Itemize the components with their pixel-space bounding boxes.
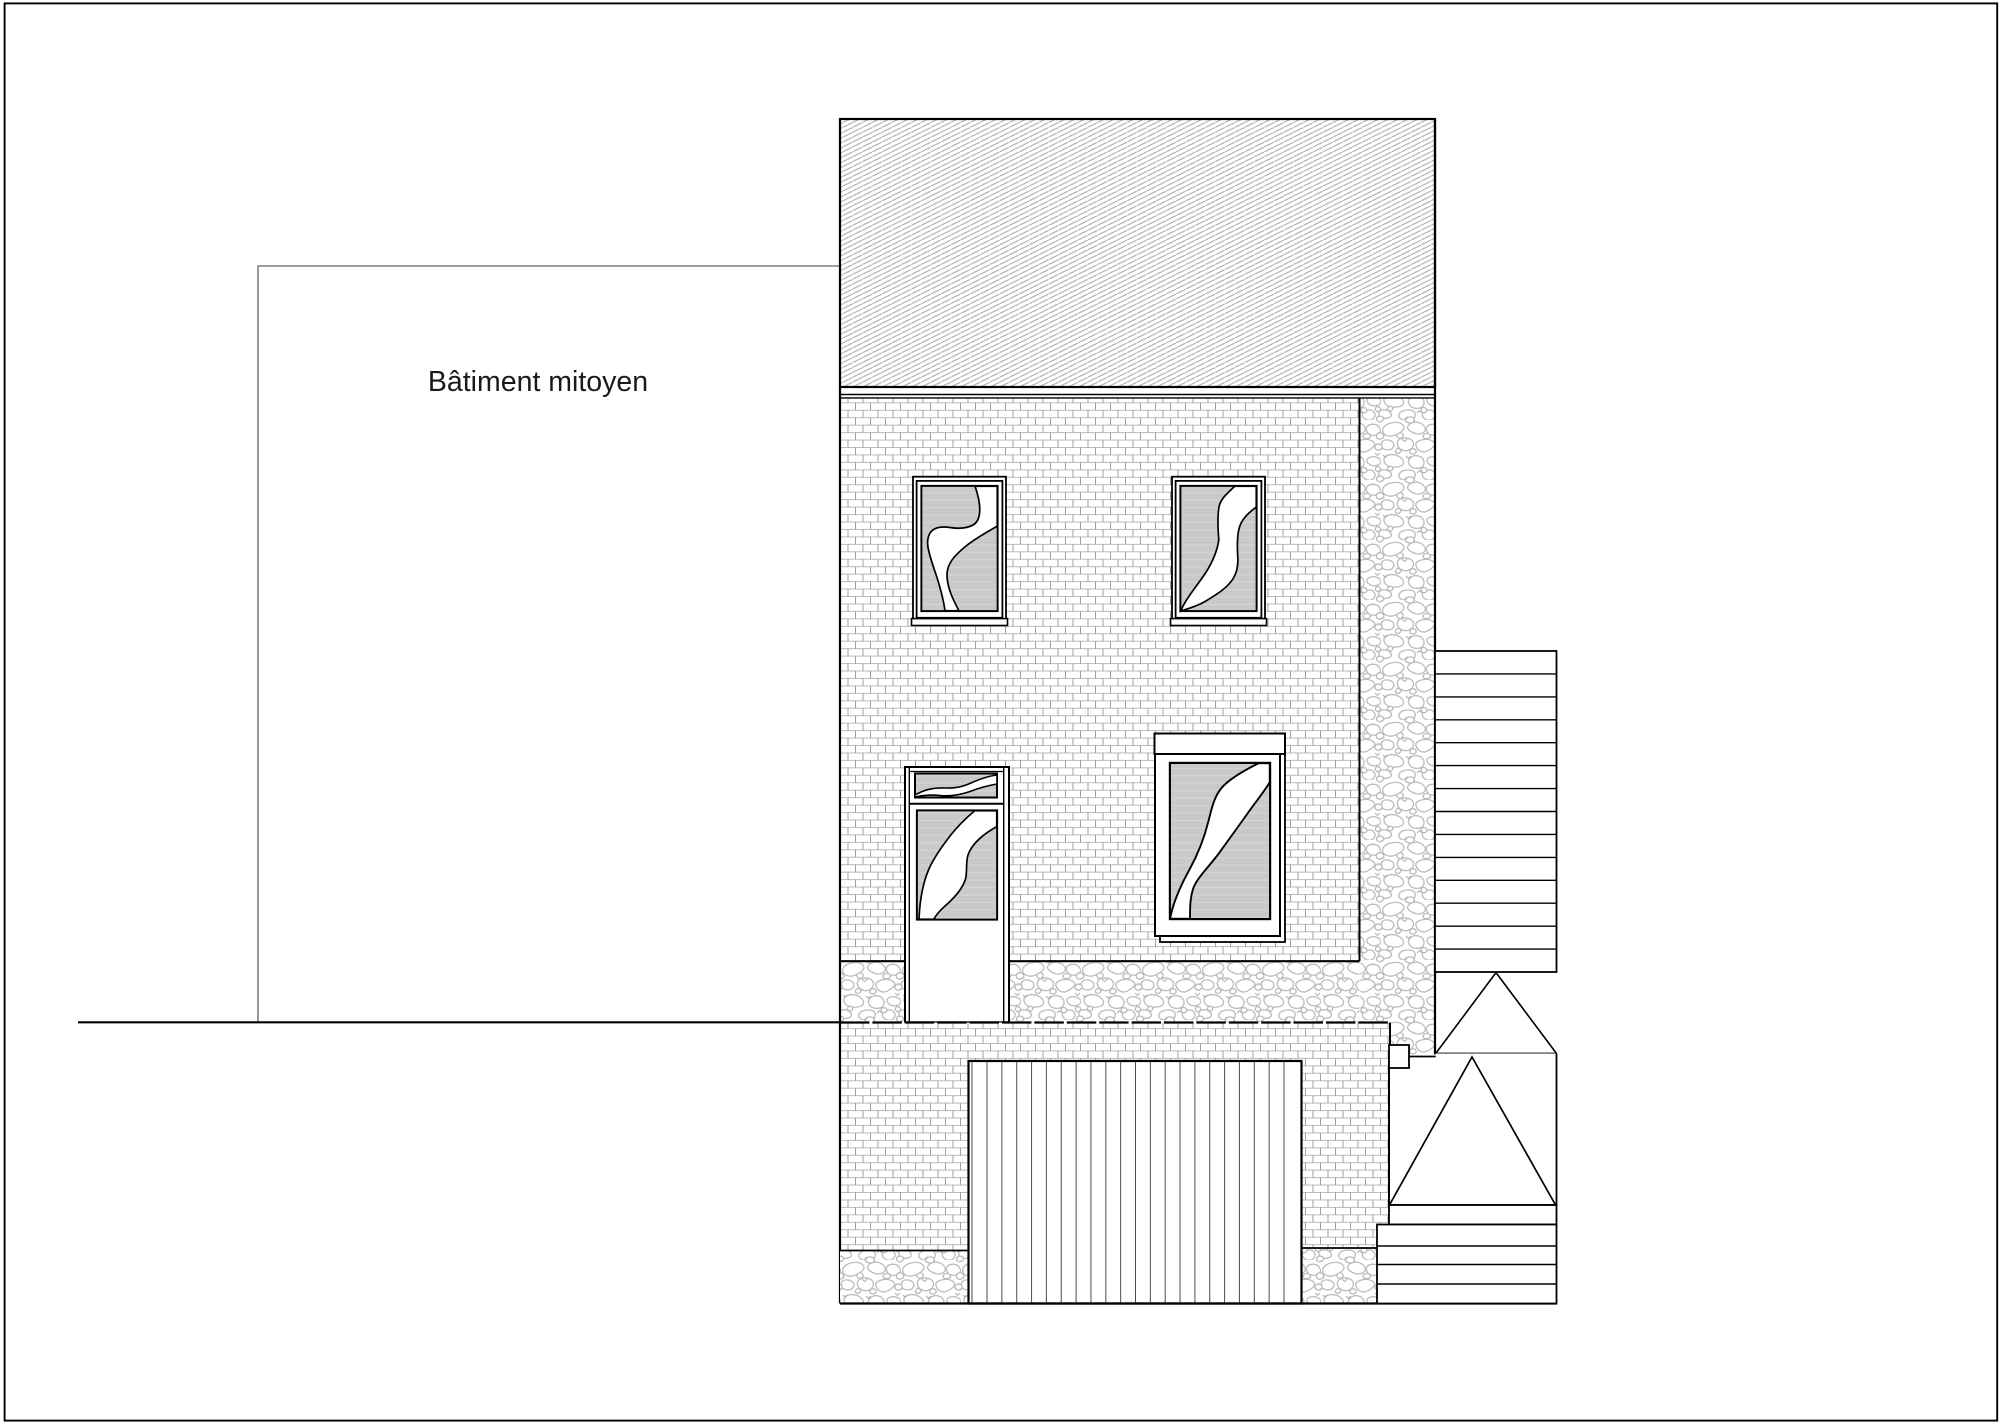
svg-text:Bâtiment mitoyen: Bâtiment mitoyen xyxy=(428,366,648,398)
